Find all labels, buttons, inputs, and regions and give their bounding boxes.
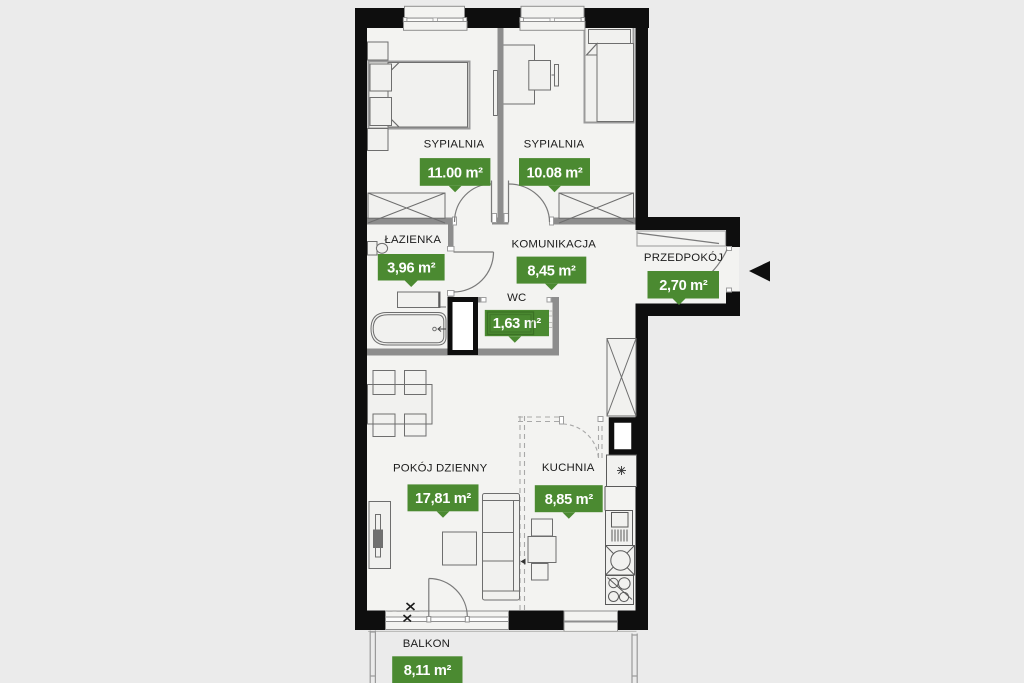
svg-text:10.08 m²: 10.08 m² [526, 165, 582, 181]
svg-text:2,70 m²: 2,70 m² [659, 278, 708, 294]
svg-text:8,85 m²: 8,85 m² [545, 492, 594, 508]
svg-text:11.00 m²: 11.00 m² [427, 165, 483, 181]
svg-text:SYPIALNIA: SYPIALNIA [424, 139, 485, 151]
svg-text:KOMUNIKACJA: KOMUNIKACJA [512, 239, 597, 251]
svg-text:8,11 m²: 8,11 m² [404, 663, 452, 679]
svg-text:17,81 m²: 17,81 m² [415, 491, 471, 507]
svg-text:WC: WC [507, 292, 526, 304]
svg-text:PRZEDPOKÓJ: PRZEDPOKÓJ [644, 251, 723, 264]
svg-text:ŁAZIENKA: ŁAZIENKA [384, 234, 441, 246]
svg-text:BALKON: BALKON [403, 638, 450, 650]
svg-text:3,96 m²: 3,96 m² [387, 261, 436, 277]
svg-text:KUCHNIA: KUCHNIA [542, 462, 595, 474]
svg-text:POKÓJ DZIENNY: POKÓJ DZIENNY [393, 462, 488, 475]
svg-text:SYPIALNIA: SYPIALNIA [524, 139, 585, 151]
svg-text:8,45 m²: 8,45 m² [527, 263, 576, 279]
